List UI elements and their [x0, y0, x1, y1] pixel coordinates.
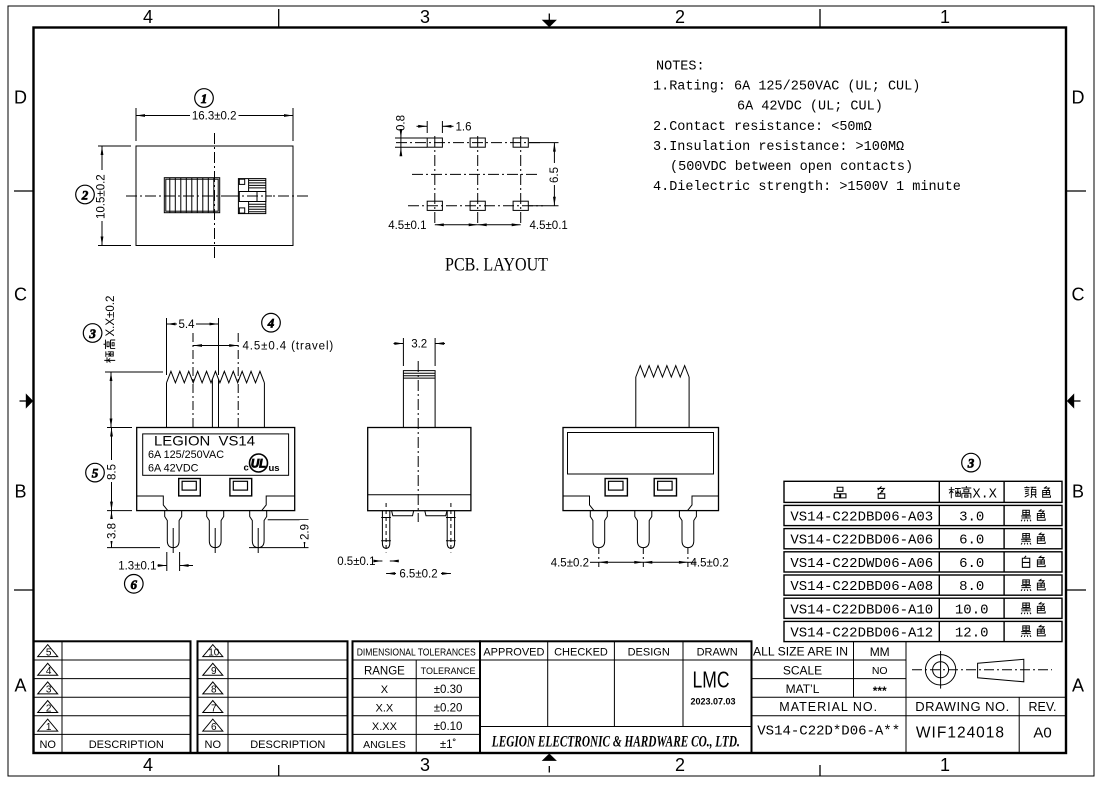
svg-text:REV.: REV. — [1028, 700, 1056, 714]
svg-text:D: D — [1072, 88, 1085, 108]
svg-text:DIMENSIONAL TOLERANCES: DIMENSIONAL TOLERANCES — [357, 646, 476, 658]
svg-text:4.5±0.4 (travel): 4.5±0.4 (travel) — [243, 341, 335, 353]
svg-text:VS14-C22DBD06-A12: VS14-C22DBD06-A12 — [790, 626, 933, 642]
svg-text:VS14-C22DBD06-A10: VS14-C22DBD06-A10 — [790, 602, 933, 618]
svg-text:4.5±0.1: 4.5±0.1 — [530, 220, 568, 232]
svg-text:0.5±0.1: 0.5±0.1 — [337, 556, 375, 568]
svg-text:c: c — [244, 463, 249, 474]
svg-text:D: D — [14, 88, 27, 108]
svg-text:4: 4 — [143, 755, 153, 775]
svg-text:ANGLES: ANGLES — [363, 739, 406, 751]
svg-text:***: *** — [873, 684, 887, 698]
svg-text:3.8: 3.8 — [107, 523, 119, 539]
svg-text:X.X: X.X — [973, 488, 997, 503]
svg-text:9: 9 — [211, 666, 217, 677]
svg-text:4: 4 — [46, 666, 52, 677]
svg-text:6: 6 — [211, 722, 217, 733]
svg-text:ALL SIZE ARE IN: ALL SIZE ARE IN — [753, 647, 848, 659]
svg-text:6A 42VDC: 6A 42VDC — [148, 462, 199, 474]
svg-text:3.Insulation resistance: >100M: 3.Insulation resistance: >100MΩ — [653, 140, 904, 155]
svg-text:±0.10: ±0.10 — [434, 721, 463, 733]
svg-text:NO: NO — [205, 739, 222, 751]
svg-text:10: 10 — [208, 647, 220, 658]
svg-text:1.3±0.1: 1.3±0.1 — [118, 561, 156, 573]
svg-text:8.0: 8.0 — [959, 579, 984, 595]
svg-text:MATERIAL NO.: MATERIAL NO. — [779, 700, 878, 714]
svg-text:3: 3 — [88, 326, 96, 341]
svg-text:3: 3 — [420, 7, 430, 27]
svg-text:VS14-C22D*D06-A**: VS14-C22D*D06-A** — [757, 724, 900, 740]
svg-text:APPROVED: APPROVED — [483, 647, 544, 659]
svg-text:1: 1 — [46, 722, 52, 733]
svg-text:2.9: 2.9 — [300, 524, 312, 540]
svg-text:SCALE: SCALE — [783, 664, 822, 678]
svg-text:2023.07.03: 2023.07.03 — [690, 697, 735, 707]
svg-text:NOTES:: NOTES: — [656, 60, 705, 75]
svg-text:5: 5 — [92, 466, 99, 481]
svg-text:16.3±0.2: 16.3±0.2 — [192, 111, 237, 123]
svg-text:2: 2 — [81, 188, 89, 203]
svg-text:6.0: 6.0 — [959, 533, 984, 549]
svg-text:X: X — [381, 684, 389, 696]
svg-text:NO: NO — [872, 665, 888, 677]
svg-text:8.5: 8.5 — [107, 464, 119, 480]
svg-text:6.0: 6.0 — [959, 556, 984, 572]
svg-text:NO: NO — [39, 739, 56, 751]
svg-text:VS14-C22DBD06-A08: VS14-C22DBD06-A08 — [790, 579, 933, 595]
svg-text:X.XX: X.XX — [372, 721, 398, 733]
svg-text:DESIGN: DESIGN — [628, 647, 670, 659]
svg-text:LMC: LMC — [693, 667, 730, 693]
svg-text:4.5±0.2: 4.5±0.2 — [691, 557, 729, 569]
svg-text:2: 2 — [675, 7, 685, 27]
svg-text:DESCRIPTION: DESCRIPTION — [250, 739, 325, 751]
svg-text:6A 125/250VAC: 6A 125/250VAC — [148, 449, 224, 461]
svg-text:3.2: 3.2 — [411, 339, 427, 351]
svg-text:±0.20: ±0.20 — [434, 703, 463, 715]
svg-text:(500VDC between open contacts): (500VDC between open contacts) — [670, 160, 913, 175]
svg-text:A: A — [14, 676, 26, 696]
svg-text:VS14-C22DBD06-A06: VS14-C22DBD06-A06 — [790, 533, 933, 549]
svg-text:DESCRIPTION: DESCRIPTION — [89, 739, 164, 751]
svg-text:MAT’L: MAT’L — [786, 682, 820, 696]
svg-text:PCB. LAYOUT: PCB. LAYOUT — [445, 255, 548, 276]
svg-text:B: B — [14, 482, 26, 502]
svg-text:2.Contact resistance: <50mΩ: 2.Contact resistance: <50mΩ — [653, 120, 872, 135]
svg-text:6: 6 — [131, 577, 138, 592]
svg-text:6.5±0.2: 6.5±0.2 — [399, 569, 437, 581]
svg-text:C: C — [14, 285, 27, 305]
svg-text:UL: UL — [251, 459, 266, 471]
svg-text:LEGION VS14: LEGION VS14 — [154, 433, 255, 449]
svg-text:10.0: 10.0 — [955, 602, 989, 618]
svg-text:4.5±0.2: 4.5±0.2 — [551, 557, 589, 569]
svg-text:2: 2 — [46, 703, 52, 714]
svg-text:1.6: 1.6 — [456, 121, 472, 133]
svg-text:LEGION ELECTRONIC & HARDWARE C: LEGION ELECTRONIC & HARDWARE CO., LTD. — [491, 734, 740, 751]
svg-text:X.X: X.X — [376, 703, 394, 715]
svg-text:±1˚: ±1˚ — [440, 739, 457, 751]
svg-text:CHECKED: CHECKED — [554, 647, 608, 659]
svg-text:4.5±0.1: 4.5±0.1 — [388, 220, 426, 232]
svg-text:1: 1 — [940, 755, 950, 775]
svg-text:1: 1 — [940, 7, 950, 27]
svg-text:3: 3 — [420, 755, 430, 775]
svg-text:4.Dielectric strength: >1500V: 4.Dielectric strength: >1500V 1 minute — [653, 180, 961, 195]
svg-text:DRAWING NO.: DRAWING NO. — [915, 699, 1010, 714]
svg-text:4: 4 — [267, 316, 275, 331]
svg-text:3: 3 — [46, 685, 52, 696]
svg-text:6.5: 6.5 — [549, 167, 561, 183]
svg-text:±0.30: ±0.30 — [434, 684, 463, 696]
svg-text:8: 8 — [211, 685, 217, 696]
svg-text:5: 5 — [46, 647, 52, 658]
svg-text:B: B — [1072, 482, 1084, 502]
svg-text:2: 2 — [675, 755, 685, 775]
svg-text:10.5±0.2: 10.5±0.2 — [96, 174, 108, 219]
svg-text:A: A — [1072, 676, 1084, 696]
svg-text:1: 1 — [201, 91, 208, 106]
svg-text:VS14-C22DWD06-A06: VS14-C22DWD06-A06 — [790, 556, 933, 572]
svg-text:VS14-C22DBD06-A03: VS14-C22DBD06-A03 — [790, 510, 933, 526]
svg-text:WIF124018: WIF124018 — [916, 725, 1005, 742]
svg-text:1.Rating: 6A 125/250VAC (UL; C: 1.Rating: 6A 125/250VAC (UL; CUL) — [653, 80, 920, 95]
svg-text:7: 7 — [211, 703, 217, 714]
svg-text:us: us — [269, 463, 280, 474]
svg-text:DRAWN: DRAWN — [697, 647, 738, 659]
svg-text:4: 4 — [143, 7, 153, 27]
svg-text:X.X±0.2: X.X±0.2 — [105, 296, 117, 337]
svg-text:3.0: 3.0 — [959, 510, 984, 526]
svg-text:TOLERANCE: TOLERANCE — [421, 666, 476, 676]
svg-text:0.8: 0.8 — [396, 115, 408, 131]
svg-text:6A 42VDC (UL; CUL): 6A 42VDC (UL; CUL) — [737, 100, 883, 115]
svg-text:3: 3 — [967, 456, 975, 471]
svg-text:12.0: 12.0 — [955, 626, 989, 642]
svg-text:5.4: 5.4 — [179, 319, 196, 331]
svg-text:C: C — [1072, 285, 1085, 305]
svg-text:A0: A0 — [1033, 725, 1051, 742]
svg-text:RANGE: RANGE — [364, 665, 405, 677]
svg-text:MM: MM — [870, 645, 890, 659]
